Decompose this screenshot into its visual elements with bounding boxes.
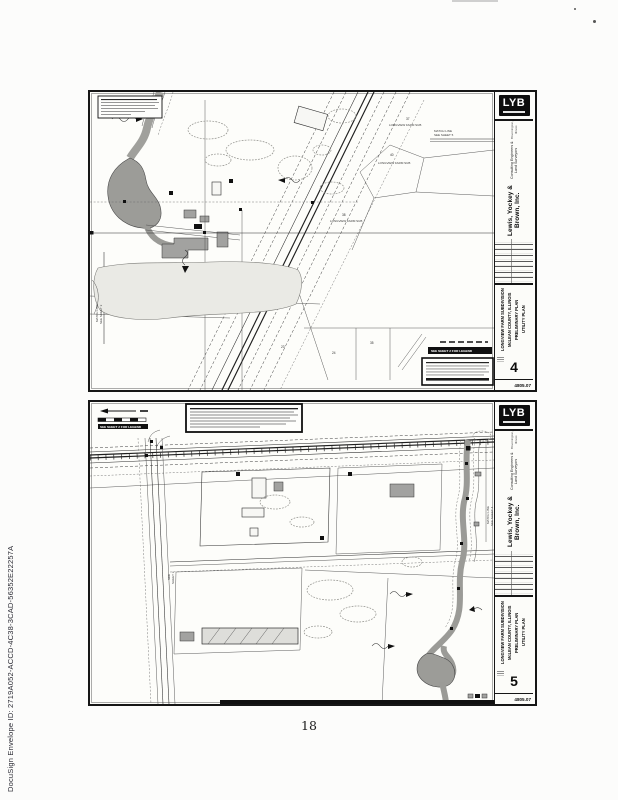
sheet-number: 4	[495, 354, 533, 380]
general-note-box	[186, 404, 302, 432]
svg-text:SEE SHEET 2 FOR LEGEND: SEE SHEET 2 FOR LEGEND	[431, 349, 473, 353]
lyb-logo-subline	[503, 111, 525, 114]
west-road	[138, 430, 175, 704]
company-tagline: Consulting Engineers & Land Surveyors	[510, 450, 518, 492]
scan-speck	[593, 20, 596, 23]
project-title-block: LONGVIEW FARM SUBDIVISION McLEAN COUNTY,…	[495, 284, 533, 354]
site-plan-map-sheet-5: SEE SHEET 2 FOR LEGEND	[90, 402, 494, 704]
revision-table	[495, 551, 533, 596]
match-line-left-label: MATCH LINE SEE SHEET 3	[95, 304, 103, 324]
company-block: Lewis, Yockey & Brown, Inc. Consulting E…	[495, 430, 533, 551]
lyb-logo: LYB	[495, 402, 533, 430]
project-line: LONGVIEW FARM SUBDIVISION	[500, 601, 507, 664]
job-number: 4805.07	[495, 694, 533, 704]
svg-text:38: 38	[342, 213, 346, 217]
drawing-sheet-4: MATCH LINE SEE SHEET 5 MATCH LINE SEE SH…	[88, 90, 537, 392]
project-line: PRELIMINARY PLAN	[514, 288, 521, 351]
svg-text:35: 35	[370, 341, 374, 345]
scale-bar: SEE SHEET 2 FOR LEGEND	[428, 342, 492, 354]
svg-text:SHEET 3: SHEET 3	[171, 571, 175, 584]
project-line: UTILITY PLAN	[521, 601, 528, 664]
contour-clouds	[260, 431, 491, 638]
project-line: McLEAN COUNTY, ILLINOIS	[507, 288, 514, 351]
svg-text:LONGVIEW FARM SUB: LONGVIEW FARM SUB	[378, 161, 410, 165]
svg-text:SEE SHEET 2 FOR LEGEND: SEE SHEET 2 FOR LEGEND	[100, 425, 142, 429]
map-inner-frame	[92, 94, 493, 389]
company-tagline: Consulting Engineers & Land Surveyors	[510, 140, 518, 181]
site-plan-map-sheet-4: MATCH LINE SEE SHEET 5 MATCH LINE SEE SH…	[90, 92, 494, 390]
wetland-area	[92, 262, 302, 320]
lyb-logo-subline	[503, 421, 525, 424]
svg-text:37: 37	[406, 117, 410, 121]
lyb-logo-text: LYB	[503, 408, 526, 419]
docusign-envelope-stamp: DocuSign Envelope ID: 2719A052-ACCD-4C38…	[6, 546, 15, 792]
company-block: Lewis, Yockey & Brown, Inc. Consulting E…	[495, 120, 533, 239]
legend-swatches	[468, 694, 487, 698]
project-line: McLEAN COUNTY, ILLINOIS	[507, 601, 514, 664]
farmstead-buildings	[162, 106, 328, 258]
svg-text:LONGVIEW FARM SUB: LONGVIEW FARM SUB	[389, 123, 421, 127]
scan-speck	[574, 8, 576, 10]
title-block-sheet-4: LYB Lewis, Yockey & Brown, Inc. Consulti…	[494, 92, 533, 390]
svg-text:SEE SHEET 5: SEE SHEET 5	[434, 133, 454, 137]
project-line: UTILITY PLAN	[521, 288, 528, 351]
sheet-number: 5	[495, 668, 533, 694]
road-note-label: SEE SHEET 3	[167, 571, 175, 584]
keynote-box	[422, 358, 493, 385]
general-note-box	[98, 96, 162, 118]
match-line-right-label: MATCH LINE SEE SHEET 4	[486, 506, 494, 526]
project-line: PRELIMINARY PLAN	[514, 601, 521, 664]
svg-text:LONGVIEW FARM SUB: LONGVIEW FARM SUB	[330, 219, 362, 223]
svg-text:40: 40	[390, 153, 394, 157]
page-number: 18	[0, 718, 618, 733]
lyb-logo-text: LYB	[503, 98, 526, 109]
title-block-sheet-5: LYB Lewis, Yockey & Brown, Inc. Consulti…	[494, 402, 533, 704]
project-title-block: LONGVIEW FARM SUBDIVISION McLEAN COUNTY,…	[495, 596, 533, 668]
scan-artifact-line	[452, 0, 498, 2]
svg-text:24: 24	[332, 351, 336, 355]
company-address: Bloomington, Illinois	[510, 431, 518, 449]
parcel-lines	[90, 100, 494, 390]
match-line-right-label: MATCH LINE SEE SHEET 5	[434, 129, 454, 137]
svg-text:23: 23	[281, 345, 285, 349]
company-address: Bloomington, Illinois	[510, 121, 518, 139]
scanned-document-page: DocuSign Envelope ID: 2719A052-ACCD-4C38…	[0, 0, 618, 800]
parcel-labels: 37 LONGVIEW FARM SUB 40 LONGVIEW FARM SU…	[281, 117, 421, 355]
company-name: Lewis, Yockey & Brown, Inc.	[507, 182, 521, 239]
revision-table	[495, 239, 533, 284]
north-arrow	[100, 409, 148, 414]
lyb-logo: LYB	[495, 92, 533, 120]
east-creek-road	[417, 440, 486, 704]
job-number: 4805.07	[495, 380, 533, 390]
project-line: LONGVIEW FARM SUBDIVISION	[500, 288, 507, 351]
svg-text:SEE SHEET 3: SEE SHEET 3	[99, 304, 103, 324]
scale-bar: SEE SHEET 2 FOR LEGEND	[98, 418, 148, 429]
company-name: Lewis, Yockey & Brown, Inc.	[507, 493, 521, 551]
drawing-sheet-5: SEE SHEET 2 FOR LEGEND	[88, 400, 537, 706]
flow-arrows	[372, 592, 482, 650]
